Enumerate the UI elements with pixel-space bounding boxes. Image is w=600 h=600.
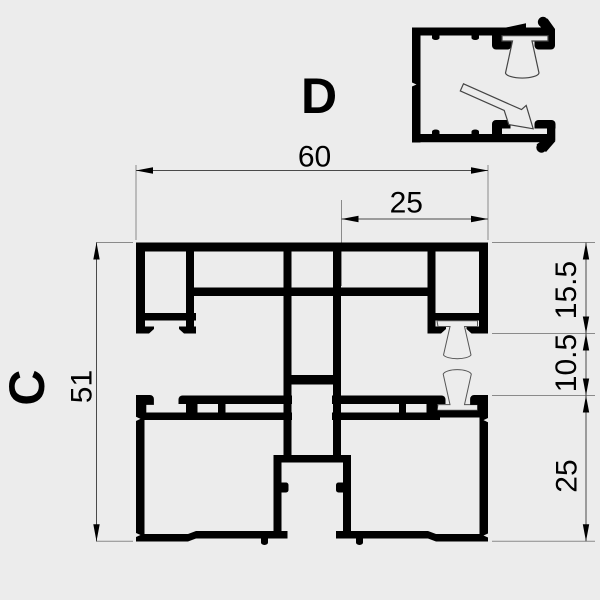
- svg-text:C: C: [0, 369, 55, 405]
- svg-text:60: 60: [298, 140, 331, 173]
- svg-text:10.5: 10.5: [550, 334, 583, 392]
- svg-text:51: 51: [65, 370, 98, 403]
- svg-text:25: 25: [550, 459, 583, 492]
- svg-text:25: 25: [390, 187, 423, 220]
- svg-text:D: D: [301, 68, 337, 124]
- svg-text:15.5: 15.5: [550, 261, 583, 319]
